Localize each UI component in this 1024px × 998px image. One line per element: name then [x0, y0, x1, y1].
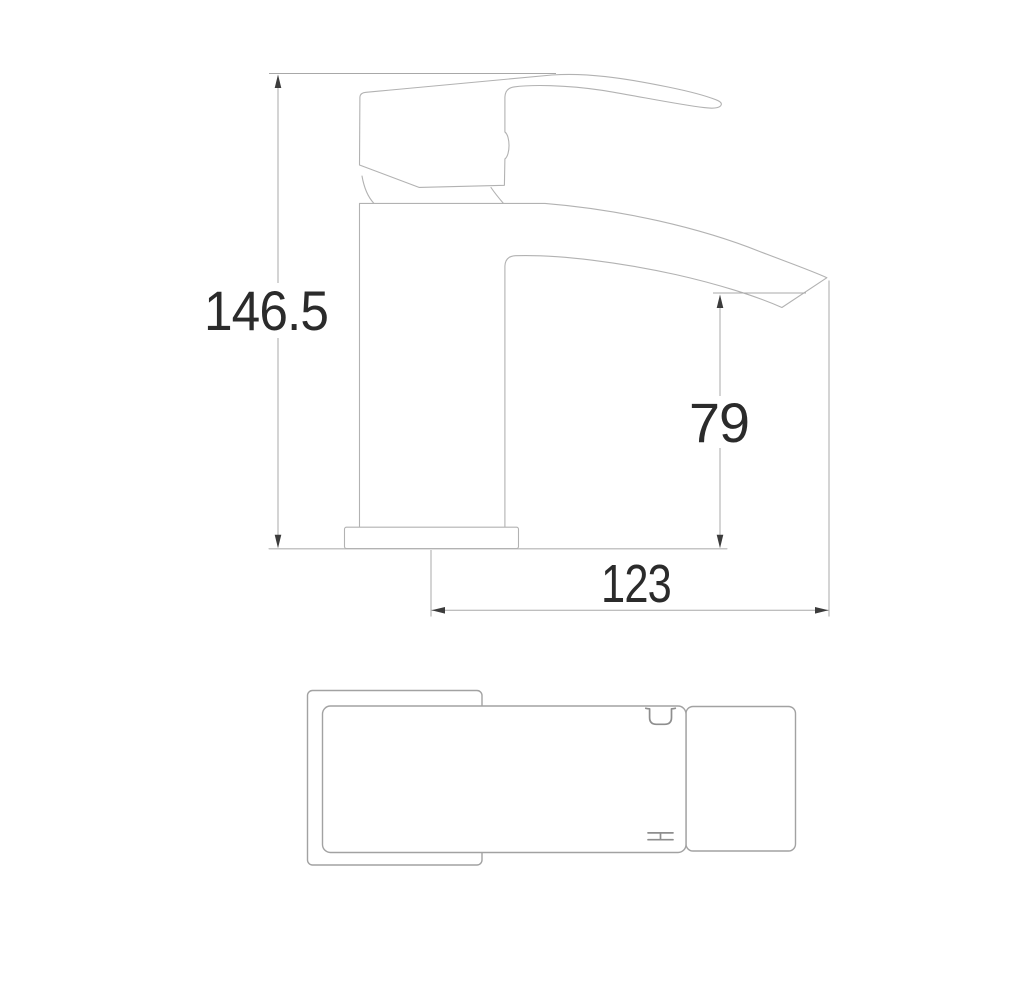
plan-body-footprint: [323, 706, 687, 853]
dimension-overall-height: 146.5: [204, 74, 556, 549]
base-plate: [345, 527, 519, 548]
spout-height-value: 79: [689, 391, 749, 454]
plan-view: [308, 691, 796, 866]
dimension-spout-height: 79: [689, 293, 806, 548]
arrowhead-up: [717, 295, 724, 309]
cartridge-dome-right-arc: [491, 188, 503, 204]
side-elevation-view: [269, 74, 827, 548]
technical-drawing: 146.5 79 123: [0, 0, 1024, 998]
arrowhead-down: [275, 535, 282, 549]
overall-height-value: 146.5: [204, 279, 328, 342]
body-spout-outline: [360, 203, 827, 527]
spout-projection-value: 123: [601, 554, 671, 614]
plan-spout-end-footprint: [686, 707, 796, 852]
drawing-canvas: 146.5 79 123: [0, 0, 1024, 998]
arrowhead-down: [717, 535, 724, 549]
handle-outline: [360, 74, 722, 187]
arrowhead-right: [815, 607, 829, 614]
arrowhead-left: [432, 607, 446, 614]
cartridge-dome-left-arc: [362, 176, 374, 203]
arrowhead-up: [275, 75, 282, 89]
dimension-spout-projection: 123: [431, 281, 829, 617]
